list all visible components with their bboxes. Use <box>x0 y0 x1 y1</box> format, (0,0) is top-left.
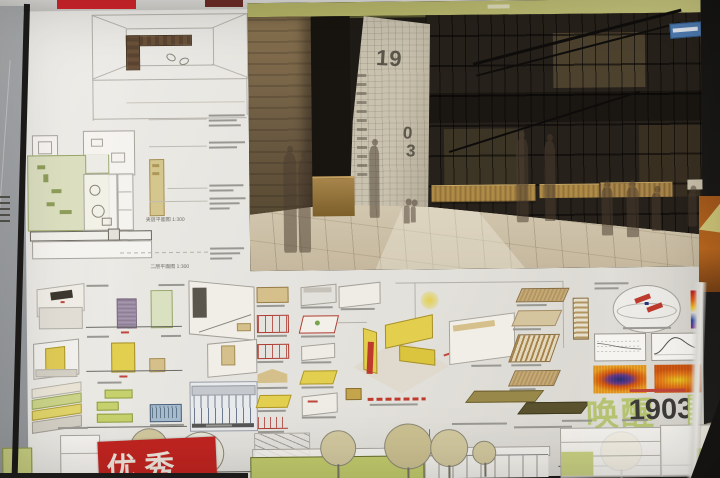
dome-blue-chip <box>645 302 649 305</box>
caption-mezzanine-plan: 夹层平面图 1:300 <box>146 216 185 223</box>
plan-furniture <box>37 165 45 169</box>
annotation-text <box>210 257 232 259</box>
person-silhouette <box>626 187 639 237</box>
section-caption <box>161 335 181 337</box>
elevation-label <box>58 427 88 429</box>
beige-bar-mark <box>152 172 159 175</box>
annotation-text <box>209 189 233 191</box>
plan-furniture <box>51 189 61 193</box>
annotation-text <box>209 124 241 126</box>
tower-digits-19: 19 <box>375 45 403 73</box>
elevation-label <box>562 420 592 422</box>
annotation-text <box>210 202 240 204</box>
annotation-text <box>209 184 243 186</box>
bottom-left-dark-strip <box>0 473 248 478</box>
plan-furniture <box>60 210 72 214</box>
plan-hall-room <box>83 174 118 231</box>
elevation-label <box>206 424 232 426</box>
analysis-caption <box>594 282 628 284</box>
analysis-caption <box>595 287 619 289</box>
axon-tan-detail <box>346 388 362 400</box>
detail-caption <box>513 328 541 330</box>
plan-small-square-inner <box>38 141 52 154</box>
caption-second-floor-plan: 二层平面图 1:300 <box>150 263 189 270</box>
axon-long-building <box>449 312 515 365</box>
person-silhouette <box>544 141 556 221</box>
icon-tan-box <box>256 287 288 303</box>
icon-gray-axon-top <box>303 287 331 292</box>
person-silhouette <box>516 138 529 222</box>
icon-red-frame-section <box>257 315 289 333</box>
icon-caption <box>257 305 285 307</box>
plan-fixture-rect <box>102 218 112 226</box>
plan-lower-platform <box>32 240 152 259</box>
plan-room-divider <box>117 191 131 192</box>
detail-slab-light <box>511 310 562 327</box>
annotation-text <box>210 252 240 254</box>
section-red-tick <box>119 375 127 377</box>
person-silhouette <box>283 153 297 253</box>
detail-caption <box>511 364 541 366</box>
walkway-dark-band <box>426 90 701 123</box>
detail-plank-dark <box>517 402 590 415</box>
annotation-text <box>209 119 237 121</box>
plan-green-notch <box>85 155 108 174</box>
annotation-text <box>210 207 230 209</box>
axon-ramp-wall <box>192 288 206 318</box>
sign-text-strip <box>673 27 698 33</box>
plan-room-mark <box>111 152 125 162</box>
pale-wedge <box>699 196 720 292</box>
central-axon-glow <box>421 291 439 309</box>
beam-scale-text <box>488 4 510 8</box>
steel-frame-roof <box>192 385 256 396</box>
icon-caption <box>341 308 375 310</box>
plan-room-divider <box>118 209 132 210</box>
icon-caption <box>258 410 286 412</box>
elevation-label <box>150 424 184 426</box>
person-silhouette <box>652 193 661 231</box>
chart-left-curve <box>595 334 643 359</box>
central-axon-caption-red <box>368 397 426 401</box>
plan-fixture-circle <box>92 205 105 218</box>
analysis-chart-left <box>594 333 646 362</box>
plan-step-block <box>108 229 120 241</box>
plan-room-mark <box>91 139 103 147</box>
plan-beige-bar <box>149 159 165 216</box>
section-purple-block <box>117 298 137 328</box>
icon-caption <box>302 416 336 418</box>
plan-furniture <box>47 202 55 206</box>
rendering-courtyard: 19 0 3 <box>248 0 704 271</box>
axon-ramp-tan <box>237 323 251 331</box>
person-silhouette <box>688 192 697 226</box>
blue-street-sign <box>669 21 702 39</box>
section-green-bar <box>97 402 119 411</box>
person-silhouette <box>298 159 311 253</box>
elevation-building <box>60 435 100 475</box>
axon-cage-base <box>35 369 77 377</box>
section-yellow-block <box>111 342 135 372</box>
axon-courtyard-tower <box>221 345 235 365</box>
orange-background-object <box>699 196 720 292</box>
timber-counter <box>312 176 354 216</box>
award-stamp: 优秀 <box>97 436 217 478</box>
tree <box>384 423 432 470</box>
plan-fixture-circle <box>89 185 100 196</box>
section-caption <box>97 382 121 384</box>
annotation-text <box>210 197 246 199</box>
title-year-text: 1903 <box>628 393 693 428</box>
detail-plank-long <box>465 390 544 403</box>
icon-axon-red-marks <box>302 392 338 416</box>
section-green-block <box>151 290 173 328</box>
elevation-label <box>622 419 648 421</box>
axon-red-dot <box>61 301 65 303</box>
section-green-bar <box>97 413 133 422</box>
icon-caption <box>257 361 283 363</box>
icon-caption <box>301 361 331 363</box>
section-green-bar <box>105 389 133 398</box>
annotation-text <box>210 247 244 249</box>
annotation-text <box>209 141 245 143</box>
section-caption <box>86 285 108 287</box>
icon-caption <box>258 387 288 389</box>
icon-caption <box>257 335 287 337</box>
dark-wood-wall-vertical <box>126 35 140 70</box>
section-red-tick <box>121 331 129 333</box>
icon-yellow-slab <box>256 395 292 408</box>
elevation-green-patch <box>561 452 593 476</box>
blue-box-lines <box>152 406 178 418</box>
annotation-text <box>209 146 237 148</box>
icon-red-mark <box>308 400 318 402</box>
icon-caption <box>302 386 334 388</box>
detail-slab-hatched <box>516 288 570 303</box>
title-red-subtitle <box>630 389 686 393</box>
icon-caption <box>301 335 335 337</box>
tree-small <box>472 441 496 465</box>
axon-caption <box>471 365 501 367</box>
tower-relief-column <box>356 72 367 176</box>
icon-red-columns <box>258 417 288 429</box>
detail-caption <box>517 304 547 306</box>
beige-bar-mark <box>152 164 159 167</box>
tree <box>430 429 468 467</box>
icon-red-frame-section <box>257 344 289 359</box>
tower-1903: 19 0 3 <box>346 13 434 232</box>
person-silhouette <box>601 187 613 235</box>
tower-digit-3: 3 <box>405 141 416 162</box>
annotation-text <box>209 114 245 116</box>
axon-roof-front <box>39 307 83 329</box>
plan-furniture <box>43 174 48 182</box>
poster-board: 夹层平面图 1:300 二层平面图 1:300 <box>0 0 720 478</box>
person-silhouette <box>369 146 380 218</box>
section-caption <box>158 284 184 286</box>
detail-vertical-grille <box>573 298 589 340</box>
steel-frame-columns <box>194 395 252 424</box>
person-silhouette <box>404 205 410 223</box>
icon-green-dot <box>315 320 320 325</box>
detail-slab-hatched <box>508 370 561 387</box>
person-silhouette <box>411 206 416 222</box>
photo-of-presentation-board: 夹层平面图 1:300 二层平面图 1:300 <box>0 0 720 478</box>
section-caption <box>87 336 109 338</box>
icon-caption <box>301 306 333 308</box>
icon-yellow-slab <box>299 370 337 384</box>
plan-room-column <box>117 173 134 230</box>
tree <box>320 430 356 466</box>
